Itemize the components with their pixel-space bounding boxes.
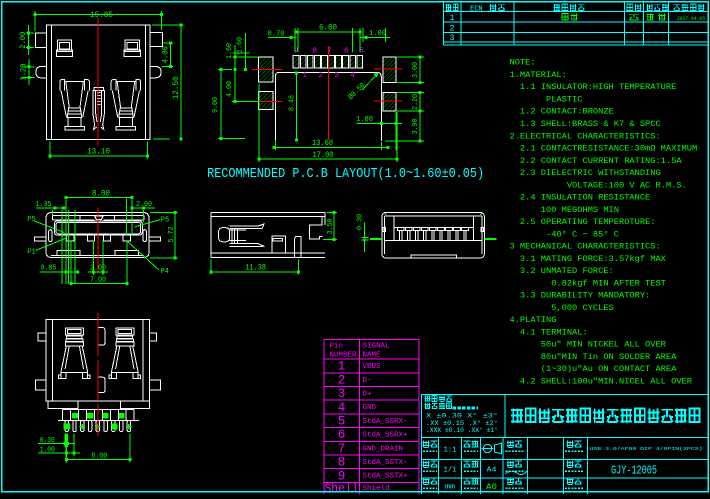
svg-text:.XXX ±0.10 .XX° ±1°: .XXX ±0.10 .XX° ±1° xyxy=(426,427,498,434)
svg-text:1/1: 1/1 xyxy=(444,467,457,475)
svg-text:StdA_SSTX+: StdA_SSTX+ xyxy=(363,473,409,481)
svg-text:2: 2 xyxy=(449,24,454,34)
svg-text:0.30: 0.30 xyxy=(357,214,365,230)
svg-text:NAME: NAME xyxy=(363,352,382,360)
svg-text:1: 1 xyxy=(338,360,346,374)
svg-text:1:1: 1:1 xyxy=(444,447,457,455)
svg-text:100 MEGOHMS MIN: 100 MEGOHMS MIN xyxy=(510,205,619,215)
svg-text:StdA_SSRX-: StdA_SSRX- xyxy=(363,418,408,426)
svg-text:GND: GND xyxy=(363,404,377,412)
svg-text:X ±0.30 X° ±3°: X ±0.30 X° ±3° xyxy=(426,413,498,420)
svg-text:A4: A4 xyxy=(487,467,498,475)
svg-text:P4: P4 xyxy=(161,268,169,276)
svg-text:mm: mm xyxy=(445,484,456,492)
svg-text:7: 7 xyxy=(338,442,346,456)
svg-text:2.00: 2.00 xyxy=(90,265,106,273)
svg-text:2.20: 2.20 xyxy=(412,94,420,110)
svg-text:3: 3 xyxy=(449,33,454,43)
svg-text:P1: P1 xyxy=(27,249,35,257)
svg-text:4.00: 4.00 xyxy=(226,81,234,97)
svg-text:80u"MIN Tin ON SOLDER AREA: 80u"MIN Tin ON SOLDER AREA xyxy=(510,352,678,362)
svg-text:3.00: 3.00 xyxy=(412,62,420,78)
svg-text:2: 2 xyxy=(338,373,346,387)
svg-text:USB 3.0/AF90 DIP 4/9PIN(2PCS): USB 3.0/AF90 DIP 4/9PIN(2PCS) xyxy=(590,446,703,452)
svg-text:50u" MIN NICKEL ALL OVER: 50u" MIN NICKEL ALL OVER xyxy=(510,340,666,350)
svg-text:NUMBER: NUMBER xyxy=(330,352,358,360)
svg-text:-40° C ~ 85° C: -40° C ~ 85° C xyxy=(510,229,619,239)
svg-text:VOLTAGE:100 V AC R.M.S.: VOLTAGE:100 V AC R.M.S. xyxy=(510,180,687,190)
svg-text:StdA_SSRX+: StdA_SSRX+ xyxy=(363,432,409,440)
svg-text:15.85: 15.85 xyxy=(90,10,113,20)
svg-text:2.3 DIELECTRIC WITHSTANDING: 2.3 DIELECTRIC WITHSTANDING xyxy=(510,168,661,178)
svg-text:8.48: 8.48 xyxy=(289,95,297,111)
svg-text:D+: D+ xyxy=(363,391,373,399)
svg-text:3.1 MATING FORCE:3.57kgf MAX: 3.1 MATING FORCE:3.57kgf MAX xyxy=(510,254,667,264)
svg-text:5,000 CYCLES: 5,000 CYCLES xyxy=(510,303,614,313)
svg-text:2.2 CONTACT CURRENT RATING:1.5: 2.2 CONTACT CURRENT RATING:1.5A xyxy=(510,156,683,166)
svg-text:P5: P5 xyxy=(161,217,169,225)
svg-text:2.00: 2.00 xyxy=(19,32,28,49)
svg-text:0.82kgf MIN AFTER TEST: 0.82kgf MIN AFTER TEST xyxy=(510,278,666,288)
svg-text:1: 1 xyxy=(302,72,307,80)
svg-text:2.4 INSULATION RESISTANCE: 2.4 INSULATION RESISTANCE xyxy=(510,193,651,203)
svg-text:8.00: 8.00 xyxy=(92,189,110,198)
svg-text:8: 8 xyxy=(338,456,346,470)
svg-text:11.38: 11.38 xyxy=(245,263,266,272)
svg-text:1: 1 xyxy=(449,13,454,23)
svg-text:SIGNAL: SIGNAL xyxy=(363,343,391,351)
svg-text:2.5 OPERATING TEMPEROTURE:: 2.5 OPERATING TEMPEROTURE: xyxy=(510,217,656,227)
svg-text:1.2 CONTACT:BRONZE: 1.2 CONTACT:BRONZE xyxy=(510,107,614,117)
svg-text:4.00: 4.00 xyxy=(161,46,170,63)
svg-text:3.3 DURABILITY MANDATORY:: 3.3 DURABILITY MANDATORY: xyxy=(510,291,651,301)
svg-text:3.2 UNMATED FORCE:: 3.2 UNMATED FORCE: xyxy=(510,266,614,276)
svg-text:3: 3 xyxy=(334,72,339,80)
svg-text:GJY-12005: GJY-12005 xyxy=(611,463,657,477)
svg-text:PLASTIC: PLASTIC xyxy=(510,94,583,104)
svg-text:1.1 INSULATOR:HIGH TEMPERATURE: 1.1 INSULATOR:HIGH TEMPERATURE xyxy=(510,82,677,92)
svg-text:13.60: 13.60 xyxy=(312,139,333,148)
svg-text:0.70: 0.70 xyxy=(268,31,285,39)
svg-text:17.00: 17.00 xyxy=(313,151,334,160)
svg-text:3.50: 3.50 xyxy=(327,218,335,234)
svg-text:7.00: 7.00 xyxy=(90,276,106,284)
svg-text:D-: D- xyxy=(363,377,372,385)
svg-text:3 MECHANICAL CHARACTERISTICS:: 3 MECHANICAL CHARACTERISTICS: xyxy=(510,242,661,252)
svg-text:1.80: 1.80 xyxy=(356,116,373,124)
svg-text:12.50: 12.50 xyxy=(171,76,181,99)
svg-text:4: 4 xyxy=(338,401,346,415)
svg-text:RECOMMENDED P.C.B LAYOUT(1.0~1: RECOMMENDED P.C.B LAYOUT(1.0~1.60±0.05) xyxy=(207,167,484,182)
svg-text:GND_DRAIN: GND_DRAIN xyxy=(363,445,404,453)
svg-text:NOTE:: NOTE: xyxy=(510,58,536,68)
svg-text:4: 4 xyxy=(350,72,355,80)
svg-text:9: 9 xyxy=(294,48,299,56)
svg-text:ECN: ECN xyxy=(470,5,483,13)
svg-text:4.2 SHELL:100u"MIN.NICEL ALL O: 4.2 SHELL:100u"MIN.NICEL ALL OVER xyxy=(510,376,692,386)
svg-text:5: 5 xyxy=(338,415,346,429)
svg-text:6: 6 xyxy=(344,48,349,56)
svg-text:1.60: 1.60 xyxy=(237,37,245,53)
svg-text:P5: P5 xyxy=(27,216,35,224)
svg-text:6: 6 xyxy=(338,428,346,442)
svg-text:2: 2 xyxy=(318,72,323,80)
svg-text:9.00: 9.00 xyxy=(212,97,220,113)
svg-text:7: 7 xyxy=(327,48,332,56)
svg-text:Pin: Pin xyxy=(330,343,344,351)
svg-text:2.00: 2.00 xyxy=(136,201,152,209)
svg-text:StdA_SSTX-: StdA_SSTX- xyxy=(363,459,408,467)
svg-text:3: 3 xyxy=(338,387,346,401)
svg-text:VBUS: VBUS xyxy=(363,363,382,371)
svg-text:8: 8 xyxy=(313,48,318,56)
svg-text:4.PLATING: 4.PLATING xyxy=(510,315,557,325)
svg-text:1.60: 1.60 xyxy=(226,43,234,59)
svg-text:5.72: 5.72 xyxy=(168,227,176,243)
svg-text:13.10: 13.10 xyxy=(87,147,110,157)
svg-text:6.00: 6.00 xyxy=(319,24,337,33)
svg-text:3.90: 3.90 xyxy=(412,118,420,134)
svg-text:A0: A0 xyxy=(486,483,497,492)
svg-text:1.MATERIAL:: 1.MATERIAL: xyxy=(510,70,567,80)
svg-text:4.1 TERMINAL:: 4.1 TERMINAL: xyxy=(510,327,588,337)
svg-text:1.35: 1.35 xyxy=(36,201,52,209)
svg-text:0.85: 0.85 xyxy=(41,265,57,273)
svg-text:1.20: 1.20 xyxy=(20,63,29,80)
svg-text:2.ELECTRICAL CHARACTERISTICS:: 2.ELECTRICAL CHARACTERISTICS: xyxy=(510,131,661,141)
svg-text:(1~30)u"Au ON CONTACT AREA: (1~30)u"Au ON CONTACT AREA xyxy=(510,364,678,374)
svg-text:1.00: 1.00 xyxy=(369,30,386,38)
svg-text:2017.04.05: 2017.04.05 xyxy=(677,15,705,22)
svg-text:1.3 SHELL:BRASS & K7 & SPCC: 1.3 SHELL:BRASS & K7 & SPCC xyxy=(510,119,661,129)
svg-text:2.1 CONTACTRESISTANCE:30mΩ MAX: 2.1 CONTACTRESISTANCE:30mΩ MAXIMUM xyxy=(510,144,698,154)
svg-text:.XX ±0.15 .X° ±2°: .XX ±0.15 .X° ±2° xyxy=(426,420,498,427)
